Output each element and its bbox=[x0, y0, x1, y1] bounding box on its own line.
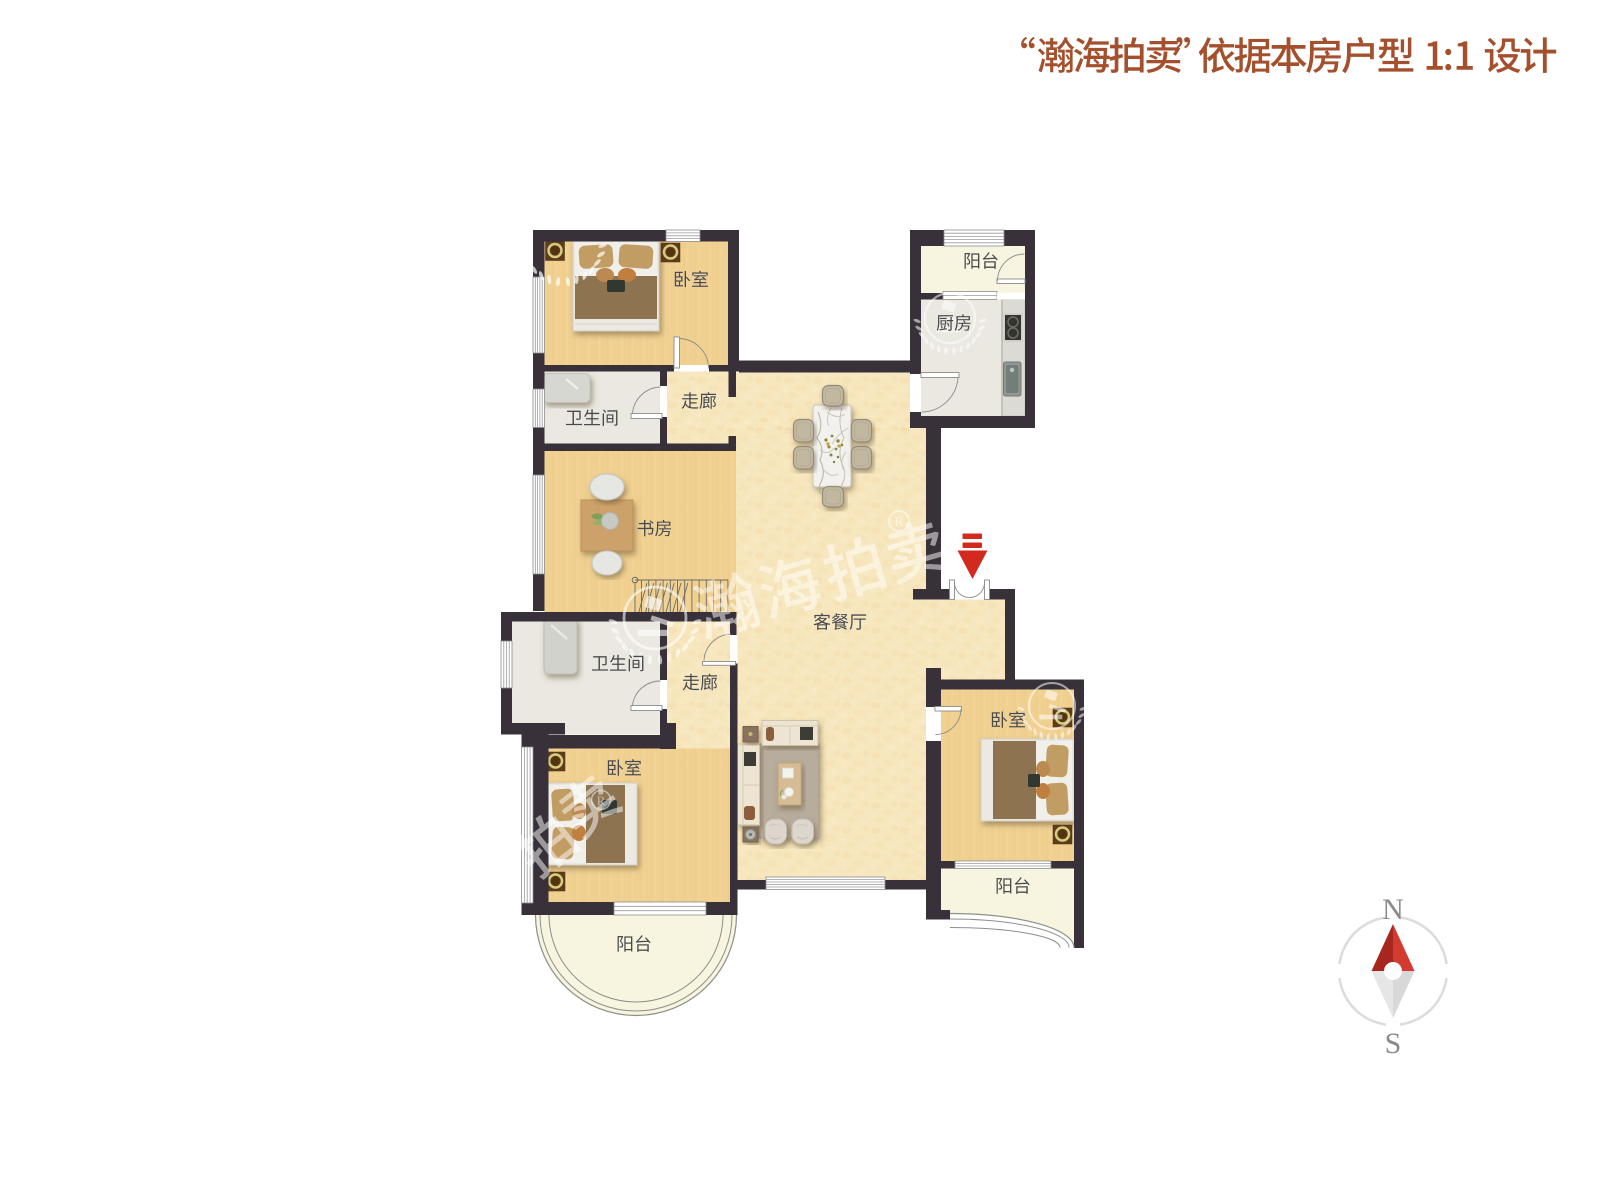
svg-text:R: R bbox=[597, 793, 606, 808]
svg-text:S: S bbox=[1385, 1027, 1402, 1060]
svg-text:N: N bbox=[1382, 893, 1404, 926]
svg-text:R: R bbox=[894, 515, 904, 530]
